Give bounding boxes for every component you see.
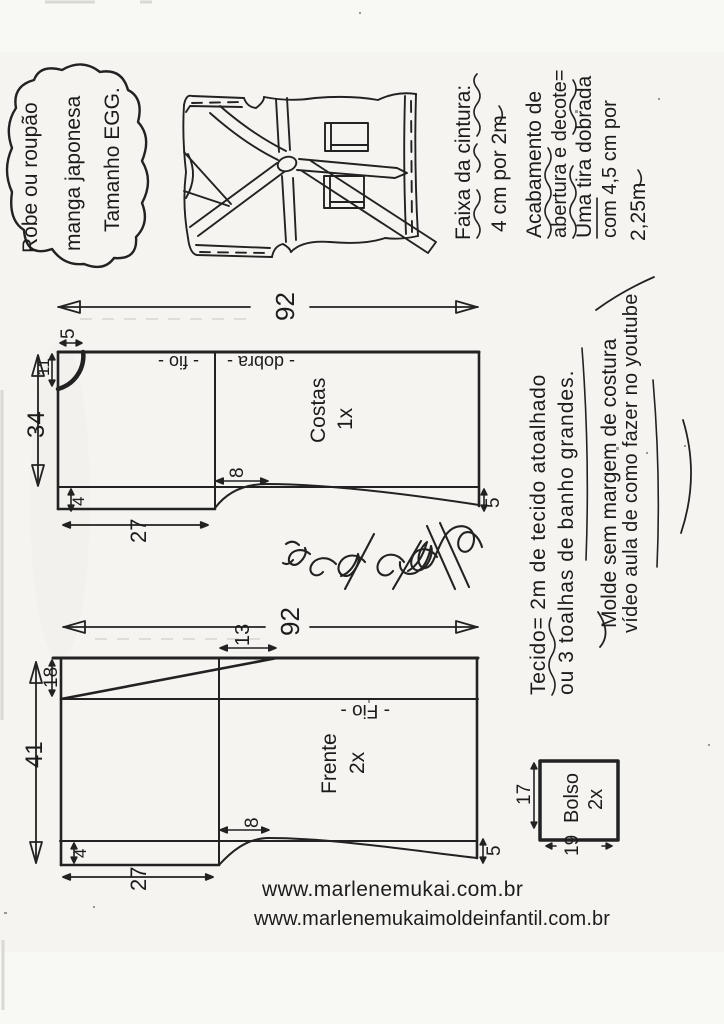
svg-text:www.marlenemukai.com.br: www.marlenemukai.com.br [261,878,523,901]
svg-text:4: 4 [71,849,90,858]
svg-text:Faixa da cintura:: Faixa da cintura: [452,85,475,240]
svg-text:2x: 2x [346,751,369,774]
svg-text:manga japonesa: manga japonesa [62,95,85,251]
svg-text:Frente: Frente [318,733,341,794]
svg-text:Acabamento de: Acabamento de [523,91,546,238]
svg-text:41: 41 [21,741,48,768]
svg-text:Robe ou roupão: Robe ou roupão [19,102,42,253]
svg-text:5: 5 [58,328,79,339]
svg-text:5: 5 [484,845,505,856]
svg-text:4: 4 [69,497,88,506]
svg-text:92: 92 [275,607,305,636]
svg-text:8: 8 [242,817,263,828]
svg-text:19: 19 [562,835,583,856]
svg-text:com 4,5 cm por: com 4,5 cm por [599,100,621,238]
svg-text:- dobra -: - dobra - [227,352,295,372]
svg-text:18: 18 [41,667,62,688]
svg-text:Tecido= 2m de tecido atoalhado: Tecido= 2m de tecido atoalhado [527,374,550,695]
svg-text:34: 34 [23,411,50,438]
svg-text:1x: 1x [334,407,357,430]
svg-text:Costas: Costas [307,378,330,443]
svg-text:Bolso: Bolso [561,773,583,823]
svg-text:27: 27 [126,867,151,891]
svg-text:27: 27 [126,519,151,543]
svg-text:2,25m: 2,25m [627,183,650,241]
svg-text:- fio -: - fio - [158,352,199,372]
svg-text:- Fio -: - Fio - [340,700,390,721]
svg-text:Uma tira dobrada: Uma tira dobrada [573,75,596,238]
svg-text:5: 5 [483,497,504,508]
svg-text:17: 17 [514,784,535,805]
svg-text:Tamanho EGG.: Tamanho EGG. [101,87,124,232]
svg-text:8: 8 [227,467,248,478]
svg-text:4 cm por 2m: 4 cm por 2m [488,115,511,232]
svg-text:abertura e decote=: abertura e decote= [549,70,571,238]
svg-text:2x: 2x [585,789,607,810]
svg-text:www.marlenemukaimoldeinfantil.: www.marlenemukaimoldeinfantil.com.br [253,908,610,930]
svg-text:13: 13 [232,624,254,646]
svg-text:92: 92 [270,292,300,321]
svg-text:vídeo aula de como fazer no: vídeo aula de como fazer no youtube [620,293,642,633]
svg-text:Molde sem margem de costura: Molde sem margem de costura [598,338,621,628]
svg-text:ou 3 toalhas de banho grande: ou 3 toalhas de banho grandes. [555,370,578,695]
